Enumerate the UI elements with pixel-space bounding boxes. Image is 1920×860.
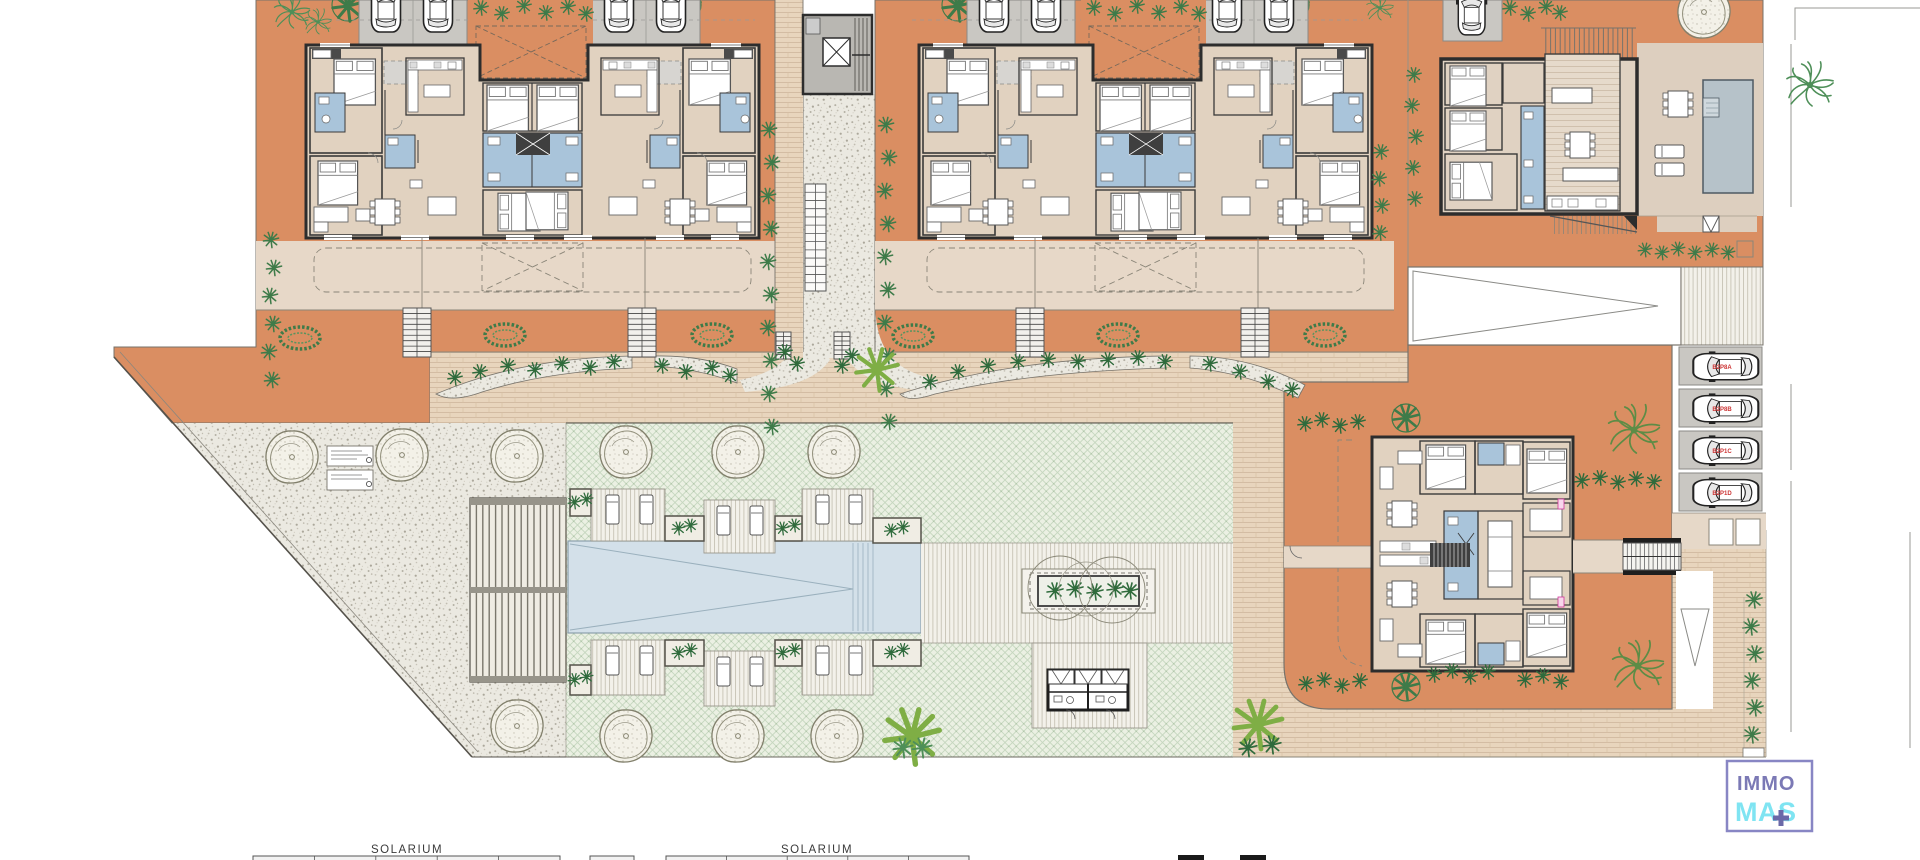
svg-text:B2P8A: B2P8A: [1712, 365, 1732, 371]
svg-text:B2P1C: B2P1C: [1712, 449, 1732, 455]
svg-text:SOLARIUM: SOLARIUM: [781, 844, 853, 856]
svg-text:B2P1D: B2P1D: [1712, 491, 1732, 497]
svg-text:B2P8B: B2P8B: [1712, 407, 1732, 413]
svg-text:SOLARIUM: SOLARIUM: [371, 844, 443, 856]
svg-text:IMMO: IMMO: [1737, 773, 1795, 795]
svg-text:MAS: MAS: [1735, 797, 1797, 827]
